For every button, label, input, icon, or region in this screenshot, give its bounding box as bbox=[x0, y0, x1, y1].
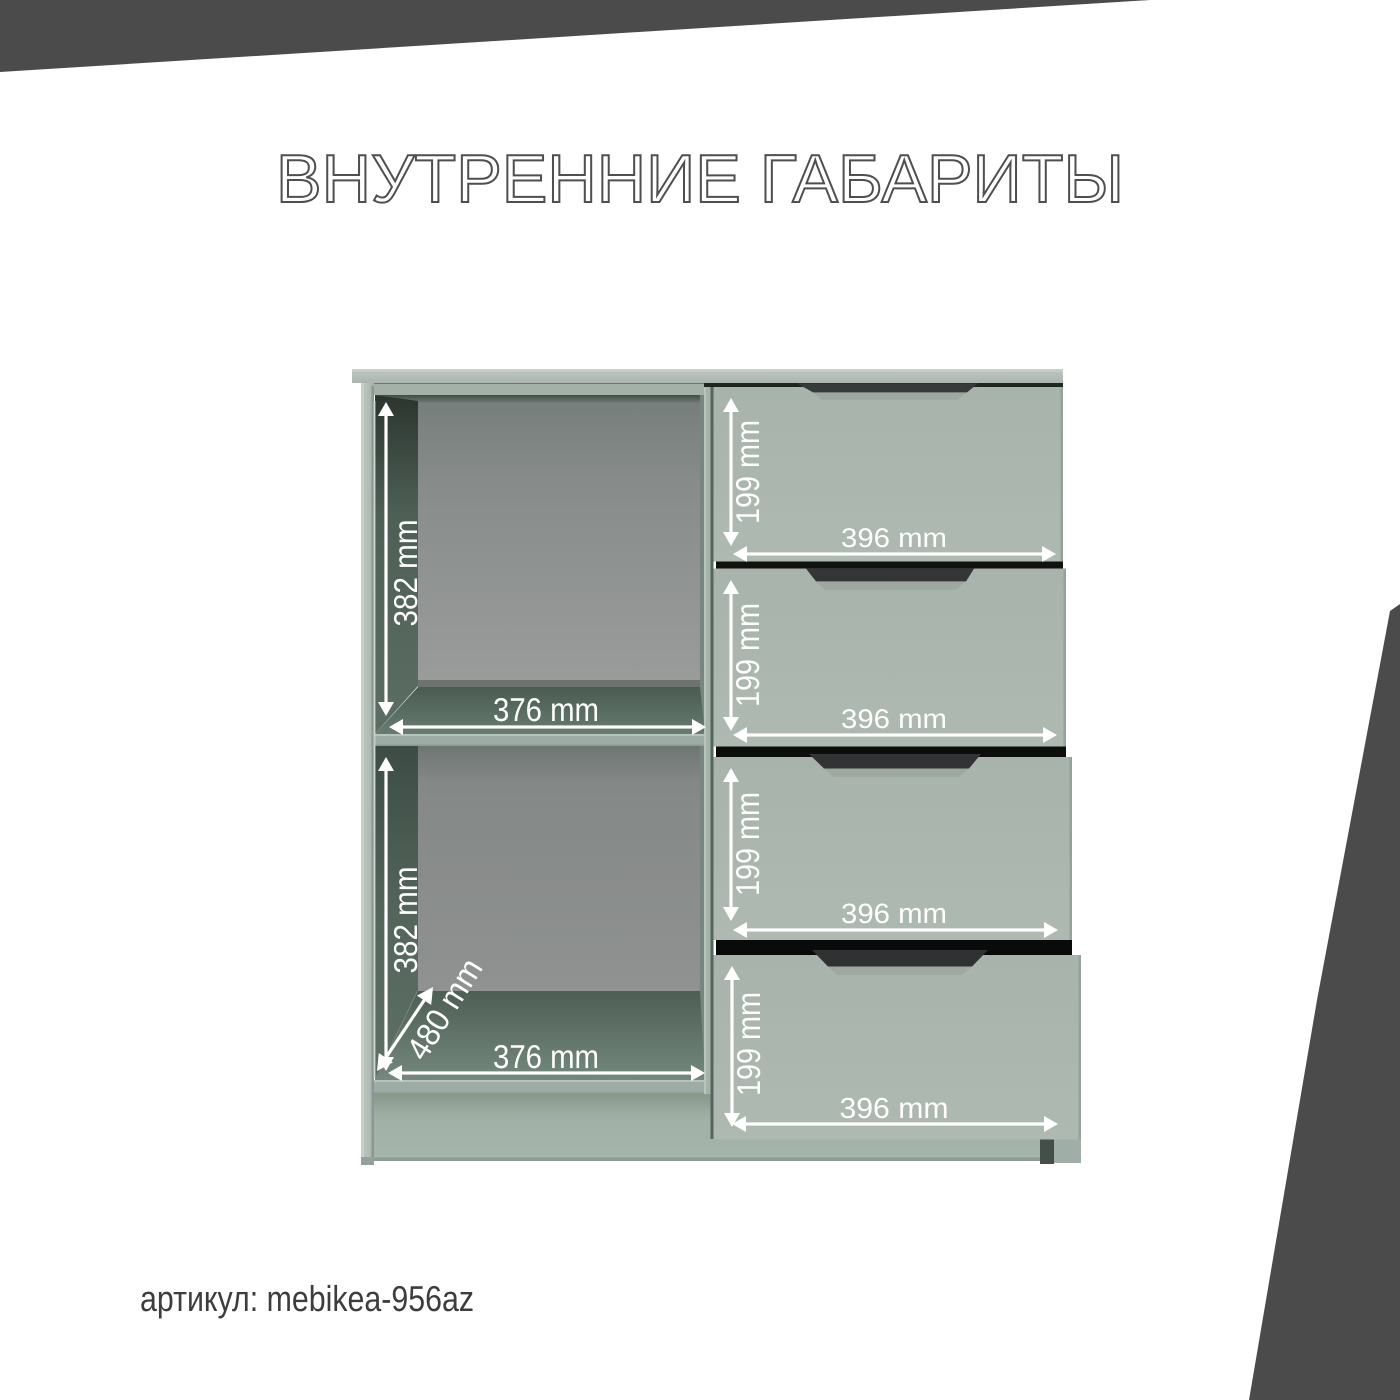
svg-text:396 mm: 396 mm bbox=[840, 1093, 949, 1125]
svg-text:396 mm: 396 mm bbox=[841, 898, 947, 929]
svg-text:396 mm: 396 mm bbox=[841, 704, 947, 734]
svg-text:199 mm: 199 mm bbox=[729, 603, 766, 707]
svg-text:199 mm: 199 mm bbox=[729, 420, 766, 524]
svg-text:396 mm: 396 mm bbox=[841, 523, 947, 553]
svg-text:199 mm: 199 mm bbox=[729, 792, 766, 896]
svg-text:199 mm: 199 mm bbox=[730, 992, 767, 1096]
svg-text:ВНУТРЕННИЕ ГАБАРИТЫ: ВНУТРЕННИЕ ГАБАРИТЫ bbox=[276, 141, 1124, 217]
svg-text:артикул: mebikea-956az: артикул: mebikea-956az bbox=[140, 1278, 474, 1319]
svg-text:376 mm: 376 mm bbox=[493, 691, 599, 728]
svg-text:376 mm: 376 mm bbox=[493, 1038, 599, 1075]
svg-text:382 mm: 382 mm bbox=[387, 867, 424, 974]
svg-text:382 mm: 382 mm bbox=[387, 520, 424, 627]
